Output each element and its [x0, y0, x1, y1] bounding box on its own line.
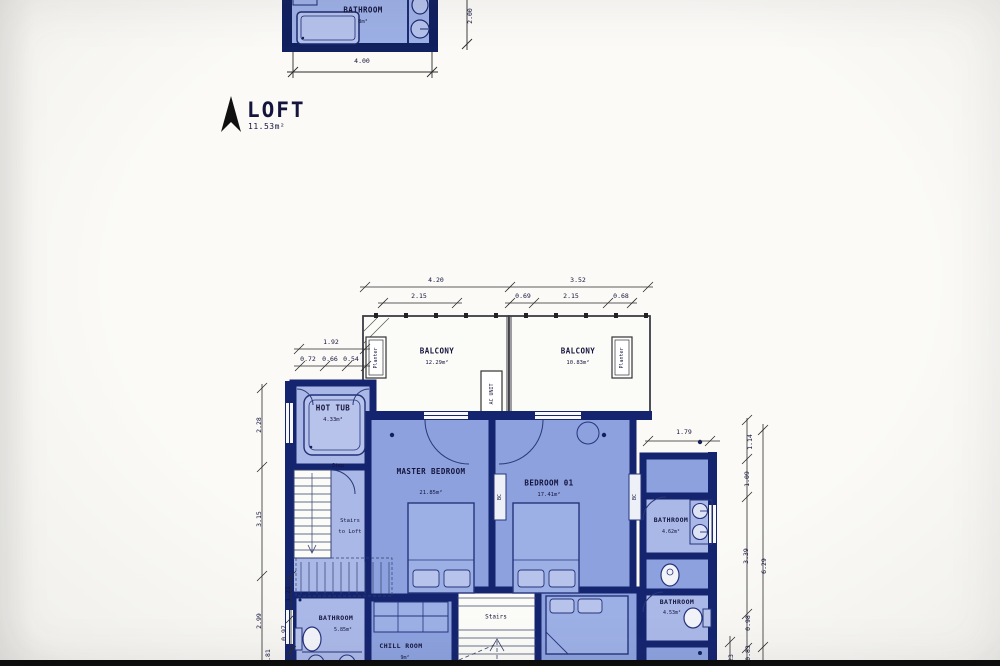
dim-left-upper-inner-3: 0.54	[343, 355, 359, 363]
main-stairs-label: Stairs	[485, 614, 507, 621]
stairwell	[455, 590, 538, 666]
bathroom-lower-left-label: BATHROOM	[319, 614, 354, 622]
bathroom-lower-left-room	[293, 595, 368, 666]
balcony-structures	[363, 313, 650, 418]
floor-title-area: 11.53m²	[248, 122, 285, 131]
dim-left-upper-inner-2: 0.66	[322, 355, 338, 363]
balcony-left-area: 12.29m²	[425, 360, 448, 366]
bathroom-ensuite-label: BATHROOM	[654, 516, 689, 524]
bedroom-01-label: BEDROOM 01	[524, 479, 573, 488]
bathroom-lower-right-label: BATHROOM	[660, 598, 695, 606]
loft-bathroom-label: BATHROOM	[343, 6, 382, 15]
dim-left-inner-2: 0.97	[280, 625, 288, 641]
hot-tub-area: 4.33m²	[323, 417, 343, 423]
north-arrow-icon	[221, 96, 241, 132]
ac-unit-label: AC UNIT	[489, 383, 495, 404]
top-wall-windows	[360, 411, 652, 420]
dim-top-outer-1: 4.20	[428, 276, 444, 284]
closet-bc-left-label: BC	[497, 494, 503, 500]
dim-left-upper: 1.92	[323, 338, 339, 346]
dim-right-inner-4: 0.98	[744, 615, 752, 631]
right-wall-windows	[708, 452, 717, 666]
balcony-right-label: BALCONY	[561, 347, 595, 356]
dim-top-inner-3: 2.15	[563, 292, 579, 300]
dim-top-inner-2: 0.69	[515, 292, 531, 300]
dim-right-outer: 6.29	[760, 558, 768, 574]
floorplan-drawing	[0, 0, 1000, 666]
wing-wc-room	[643, 456, 713, 496]
master-bedroom-area: 21.85m²	[419, 490, 442, 496]
bedroom-02-bed	[546, 596, 628, 654]
dim-right-inner-5: 0.83	[744, 645, 752, 661]
dim-left-upper-inner-1: 0.72	[300, 355, 316, 363]
step-label: Step	[332, 463, 344, 469]
dim-left-outer-1: 2.28	[255, 417, 263, 433]
planter-right-label: Planter	[619, 347, 625, 368]
left-wall-windows	[285, 381, 294, 666]
dim-right-inner-1: 1.14	[746, 434, 754, 450]
bathroom-lower-left-area: 5.85m²	[334, 627, 352, 633]
dim-top-inner-1: 2.15	[411, 292, 427, 300]
balcony-left-label: BALCONY	[420, 347, 454, 356]
dim-right-inner-3: 3.39	[742, 548, 750, 564]
chill-room-label: CHILL ROOM	[379, 642, 422, 650]
chill-room-sofa	[374, 602, 448, 632]
dim-left-outer-2: 3.15	[255, 511, 263, 527]
stairs-to-loft-label-2: to Loft	[338, 529, 361, 535]
dim-top-inner-4: 0.68	[613, 292, 629, 300]
dim-right-wing-width: 1.79	[676, 428, 692, 436]
loft-dim-width: 4.00	[354, 57, 370, 65]
bedroom-01-area: 17.41m²	[537, 492, 560, 498]
bathroom-lower-right-area: 4.53m²	[663, 610, 681, 616]
hot-tub-label: HOT TUB	[316, 404, 350, 413]
master-bedroom-label: MASTER BEDROOM	[395, 467, 467, 477]
balcony-right-area: 10.83m²	[566, 360, 589, 366]
bathroom-ensuite-area: 4.62m²	[662, 529, 680, 535]
loft-dim-height: 2.00	[466, 8, 474, 24]
stairs-to-loft-label-1: Stairs	[340, 518, 360, 524]
floorplan-photo: BATHROOM 8m² 4.00 2.00 LOFT 11.53m² 4.20…	[0, 0, 1000, 666]
planter-left-label: Planter	[373, 347, 379, 368]
dim-left-inner-1: 1.21	[284, 586, 292, 602]
dim-right-inner-2: 1.09	[743, 471, 751, 487]
closet-bc-right-label: BC	[632, 494, 638, 500]
loft-bathroom-area: 8m²	[358, 19, 368, 25]
photo-bottom-edge	[0, 660, 1000, 666]
dim-left-outer-3: 2.99	[255, 613, 263, 629]
dim-top-outer-2: 3.52	[570, 276, 586, 284]
floor-title: LOFT	[247, 98, 306, 122]
